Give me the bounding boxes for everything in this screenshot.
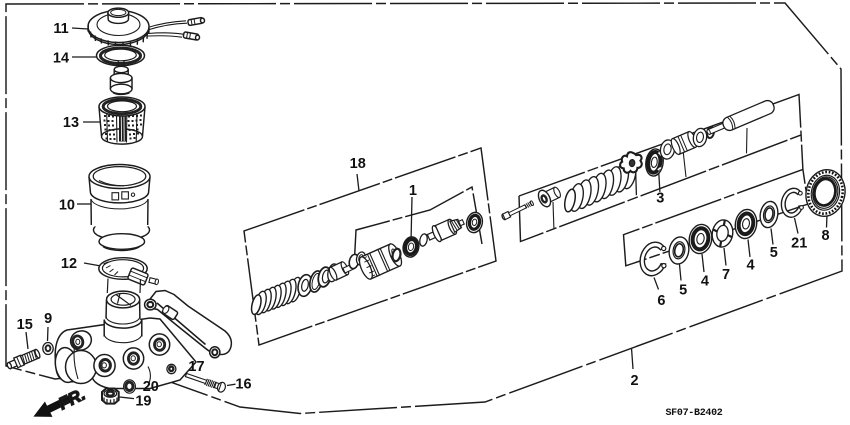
- svg-text:17: 17: [188, 359, 204, 375]
- svg-text:10: 10: [59, 198, 75, 214]
- svg-text:7: 7: [722, 267, 730, 283]
- svg-text:13: 13: [63, 115, 79, 131]
- svg-text:3: 3: [656, 191, 664, 207]
- svg-text:19: 19: [135, 394, 151, 410]
- svg-text:4: 4: [746, 258, 754, 274]
- svg-text:5: 5: [679, 283, 687, 299]
- svg-text:1: 1: [409, 183, 417, 199]
- svg-text:21: 21: [791, 235, 807, 251]
- svg-text:6: 6: [657, 293, 665, 309]
- svg-text:2: 2: [630, 373, 638, 389]
- svg-text:18: 18: [350, 156, 366, 172]
- svg-text:4: 4: [701, 274, 709, 290]
- svg-text:12: 12: [61, 256, 77, 272]
- svg-text:15: 15: [17, 317, 33, 333]
- svg-text:11: 11: [53, 21, 68, 37]
- svg-text:16: 16: [235, 377, 251, 393]
- svg-text:9: 9: [44, 311, 52, 327]
- svg-text:14: 14: [53, 51, 69, 67]
- svg-text:SF07-B2402: SF07-B2402: [665, 408, 722, 419]
- svg-text:5: 5: [770, 245, 778, 261]
- svg-text:8: 8: [822, 228, 830, 244]
